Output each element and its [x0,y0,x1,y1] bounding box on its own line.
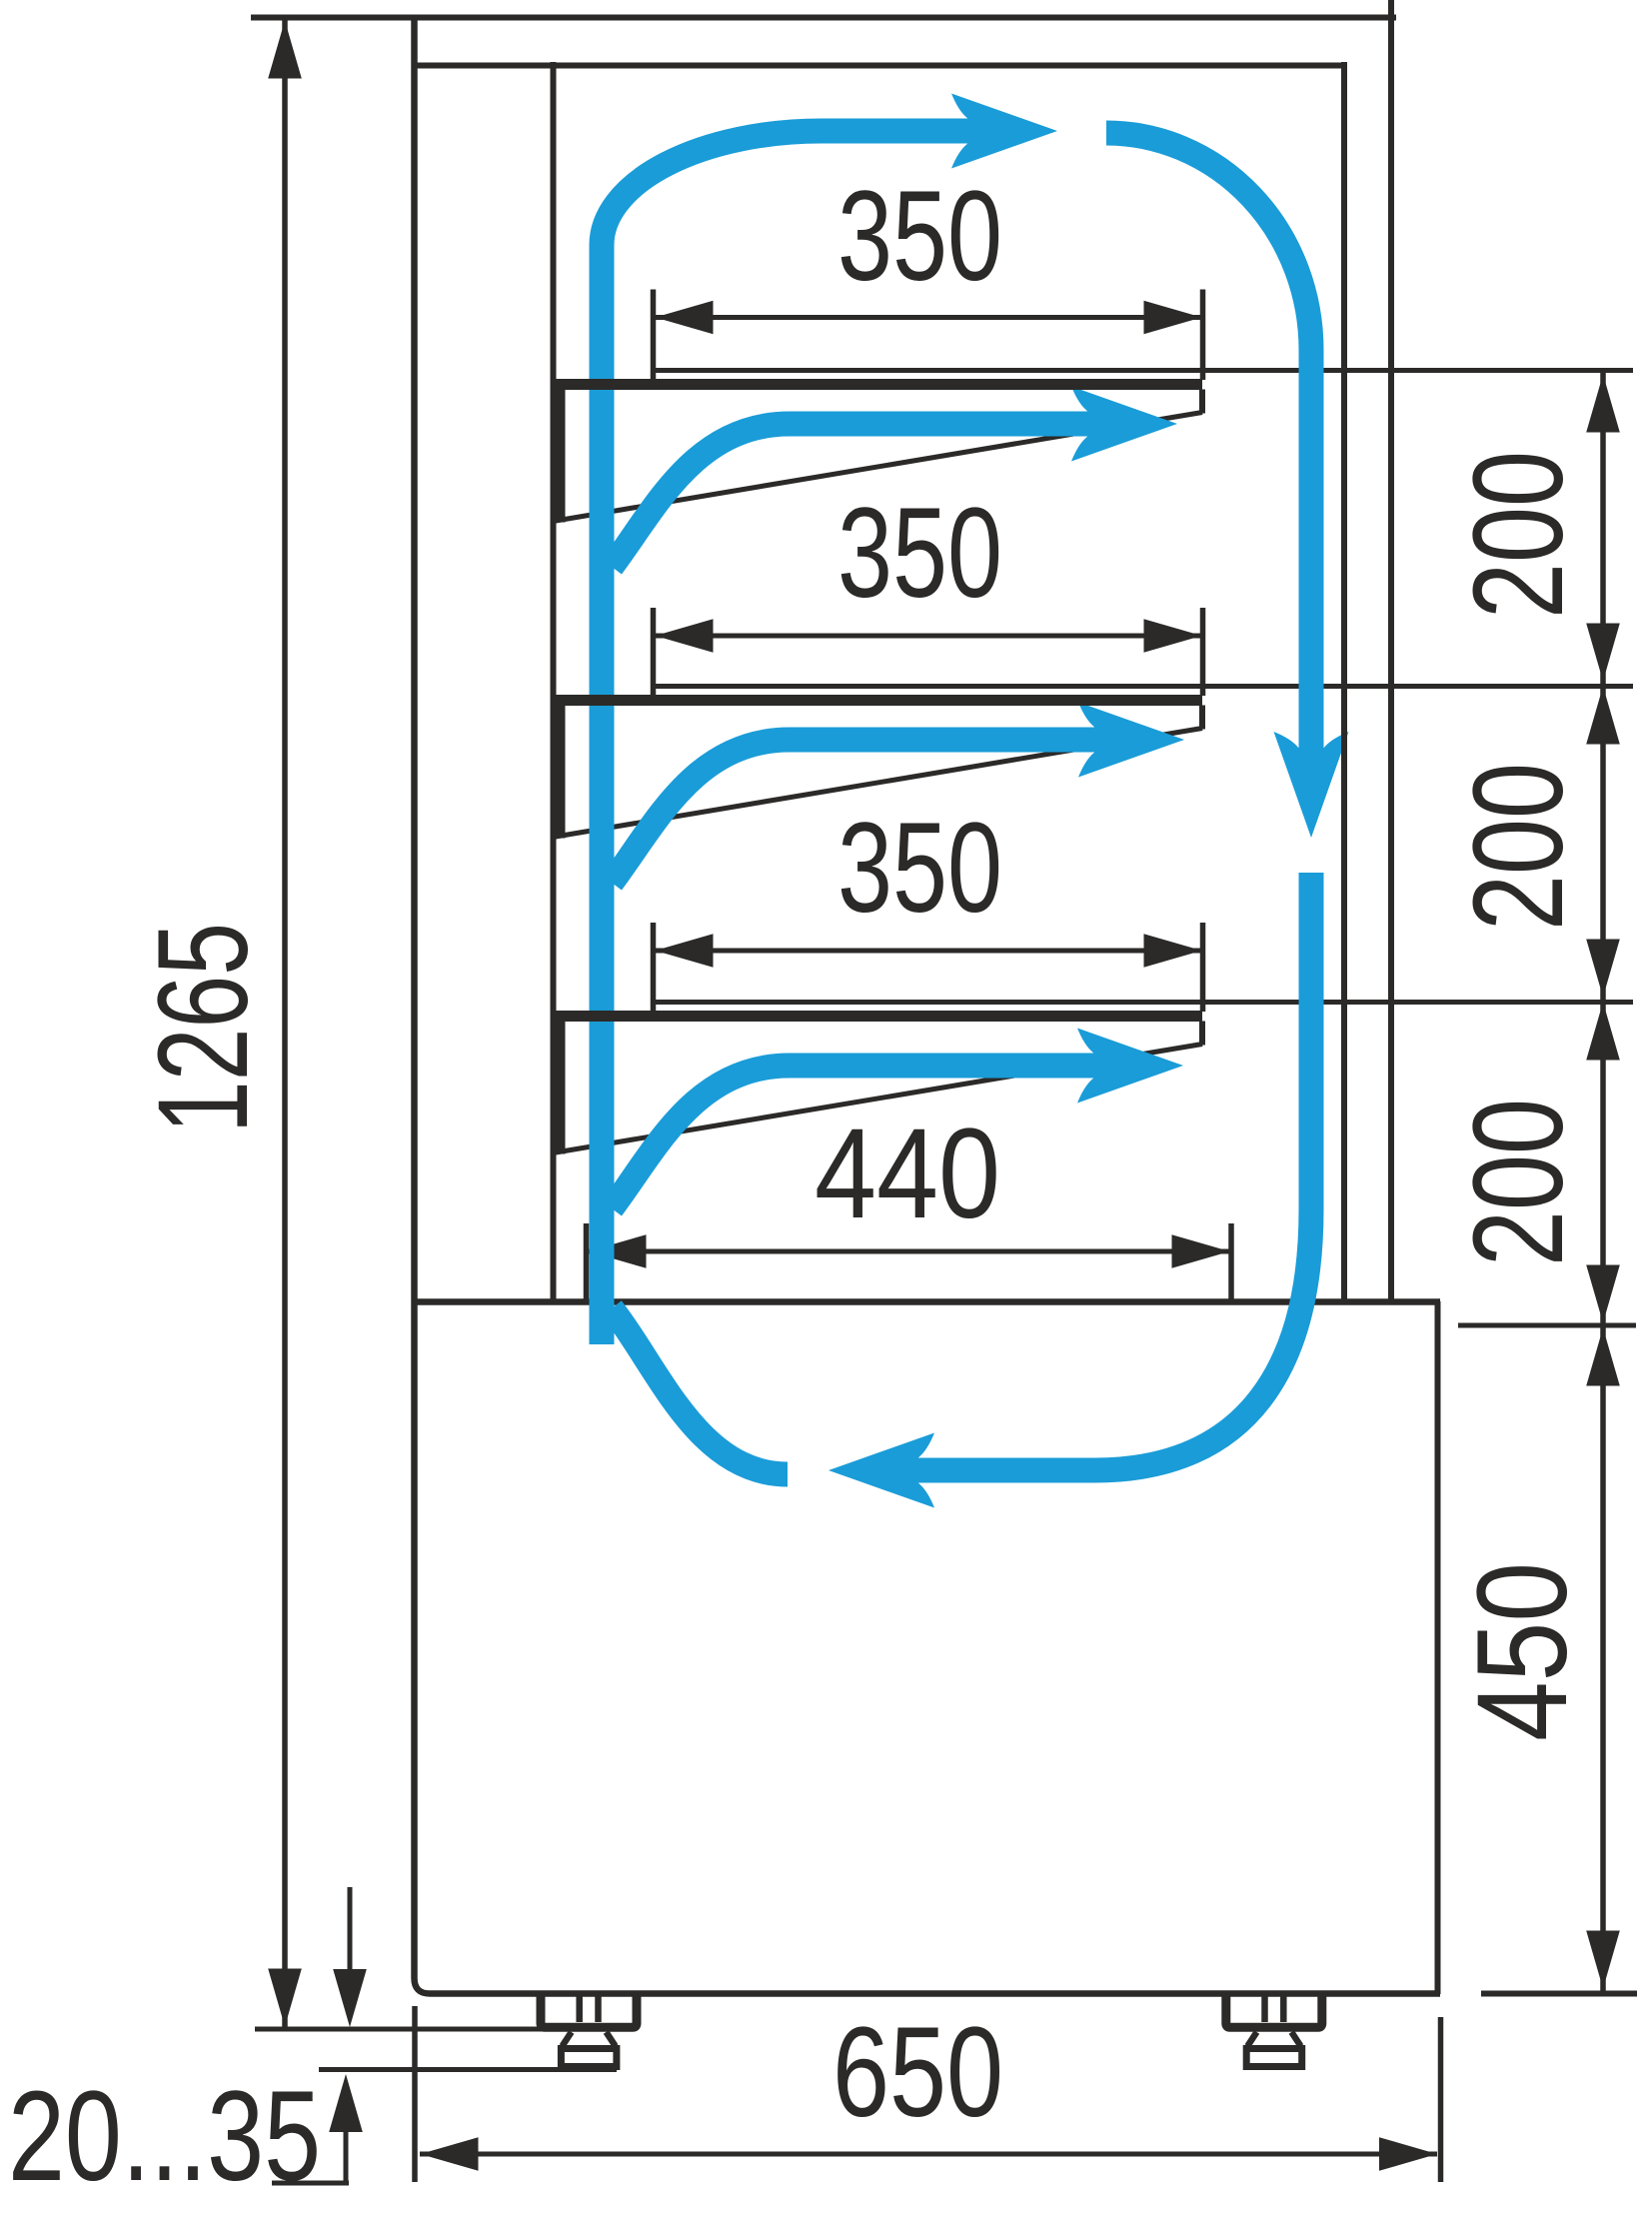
svg-text:350: 350 [837,482,1002,625]
svg-text:200: 200 [1447,1099,1590,1266]
svg-text:200: 200 [1447,451,1590,619]
svg-text:440: 440 [815,1103,1000,1245]
svg-text:350: 350 [837,165,1002,308]
svg-text:350: 350 [837,797,1002,940]
svg-text:650: 650 [832,2001,1003,2144]
svg-text:1265: 1265 [132,923,275,1133]
svg-text:20...35: 20...35 [8,2065,321,2208]
svg-text:450: 450 [1451,1562,1594,1741]
svg-text:200: 200 [1447,763,1590,931]
